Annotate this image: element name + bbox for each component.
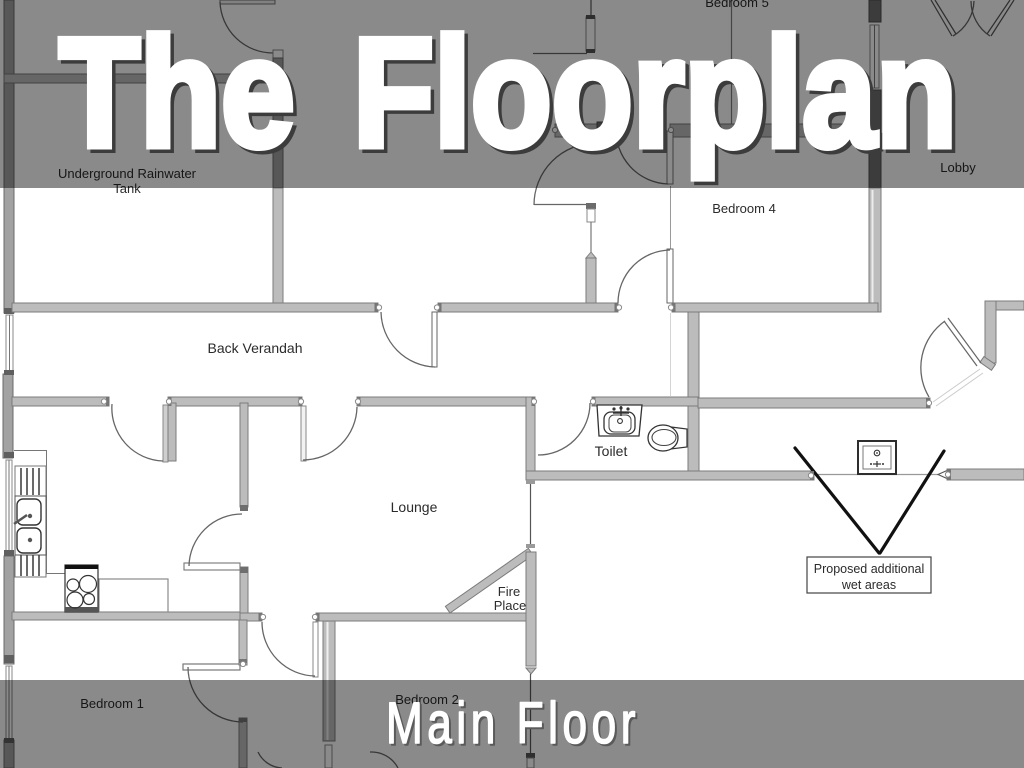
svg-text:Proposed additional: Proposed additional — [814, 562, 925, 576]
svg-text:Bedroom 4: Bedroom 4 — [712, 201, 776, 216]
svg-text:Main Floor: Main Floor — [386, 691, 640, 756]
svg-text:Fire: Fire — [498, 584, 520, 599]
svg-text:Toilet: Toilet — [595, 443, 628, 459]
svg-text:The Floorplan: The Floorplan — [59, 6, 957, 179]
svg-text:wet areas: wet areas — [841, 578, 896, 592]
svg-text:Back Verandah: Back Verandah — [208, 340, 303, 356]
svg-text:Place: Place — [494, 598, 527, 613]
svg-text:Lounge: Lounge — [391, 499, 438, 515]
